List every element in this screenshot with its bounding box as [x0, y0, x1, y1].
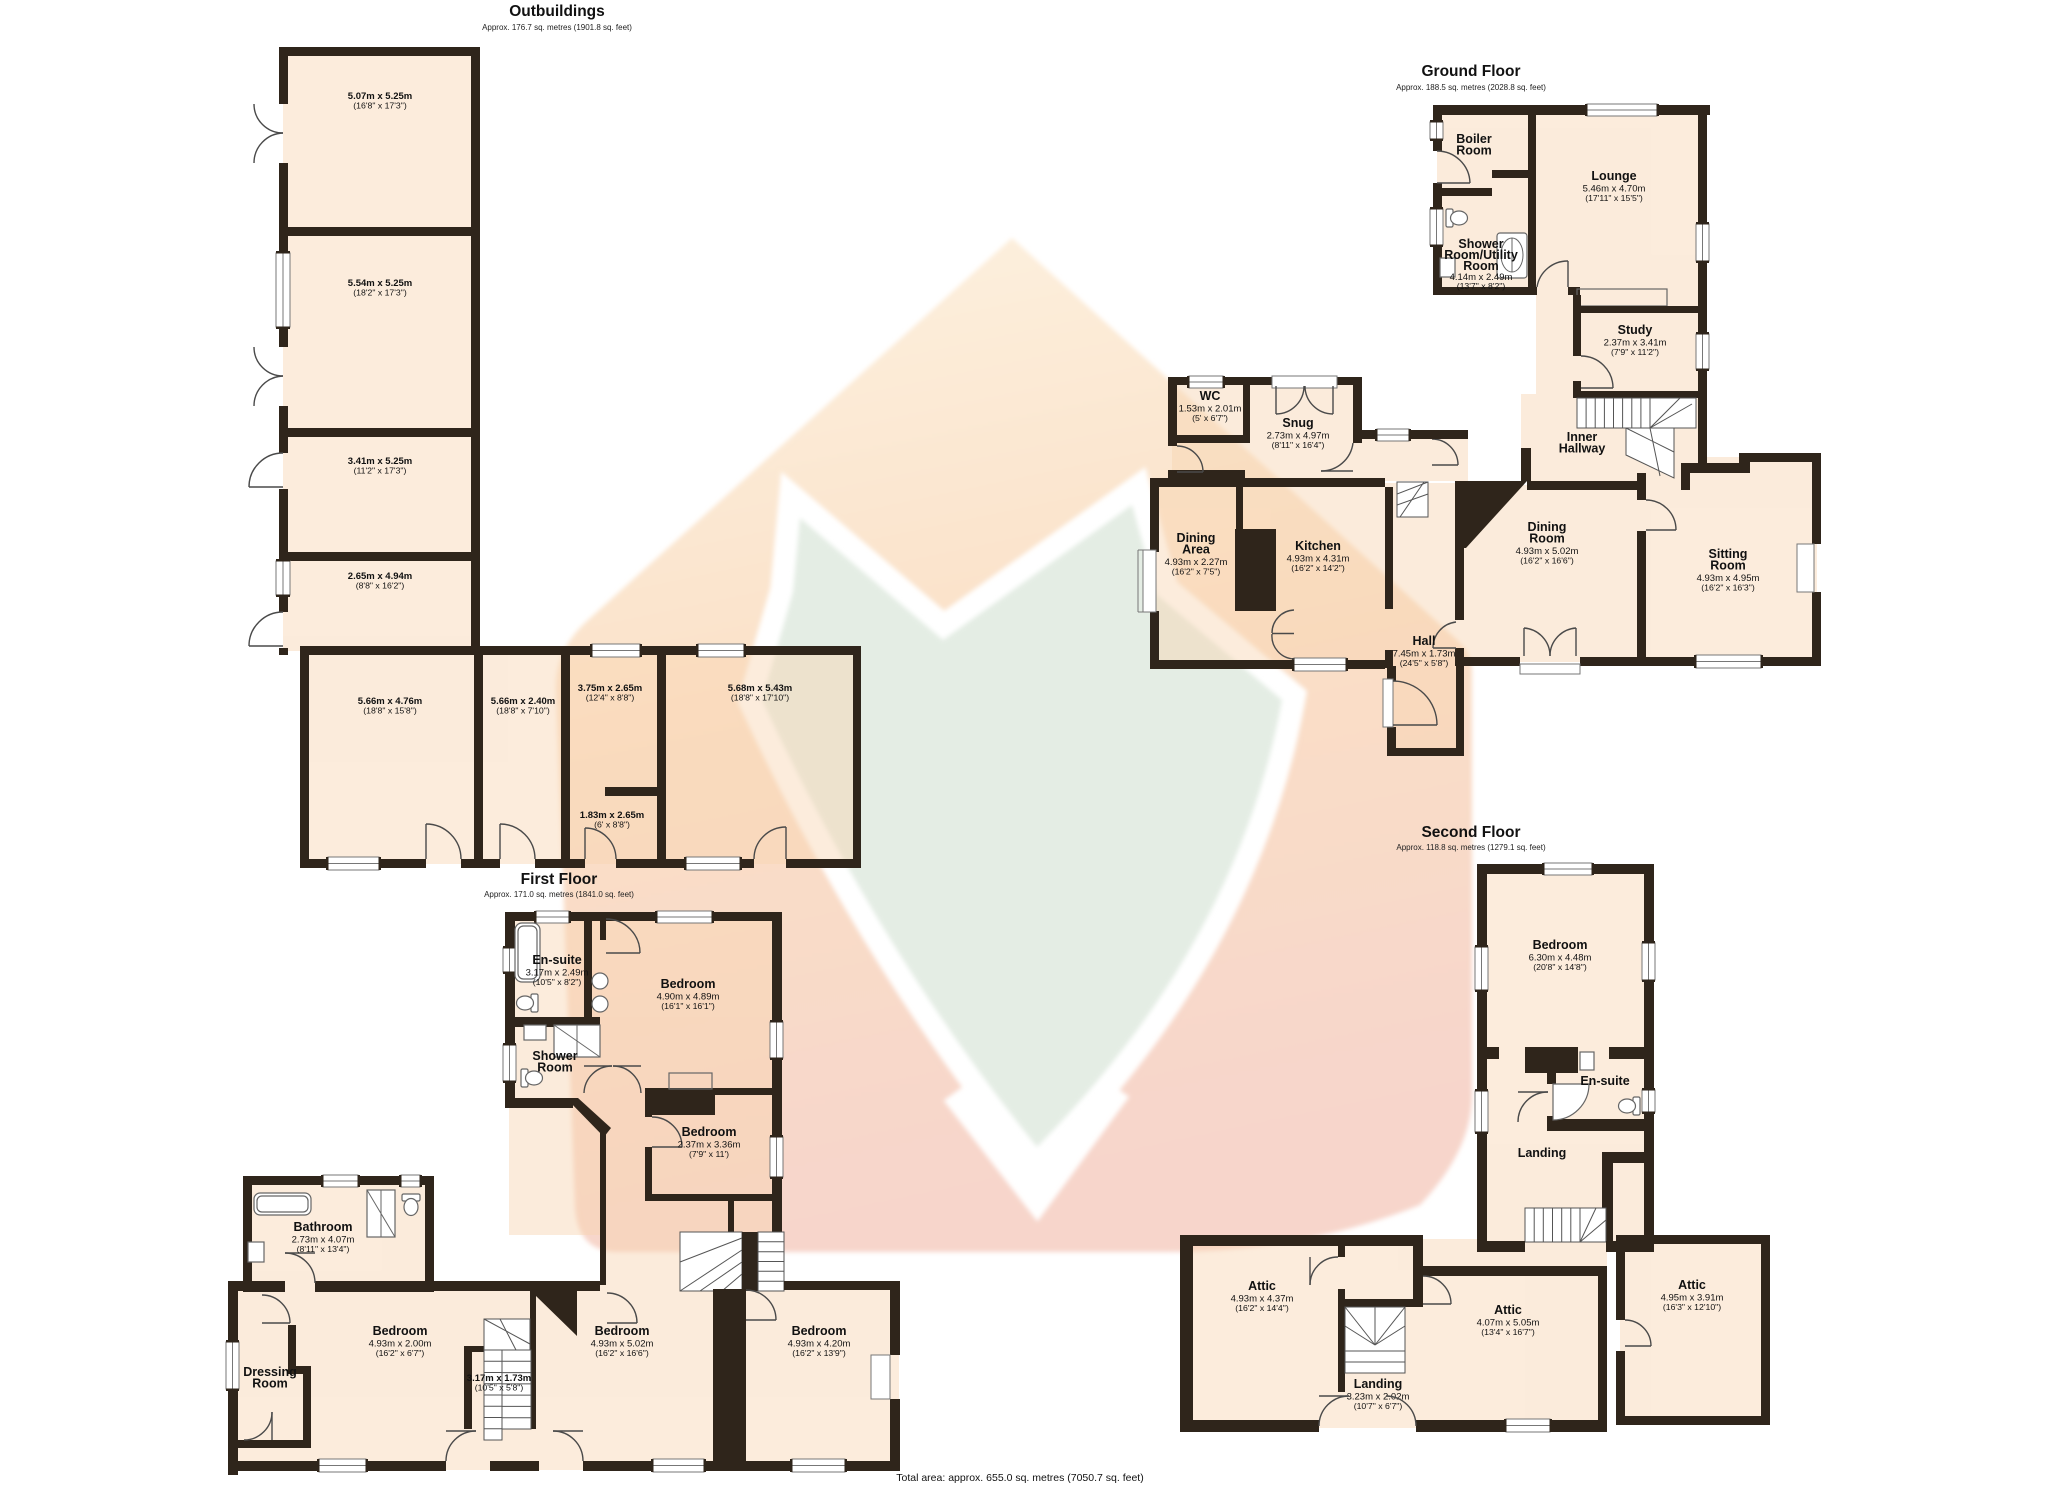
svg-text:Outbuildings: Outbuildings: [509, 3, 605, 20]
svg-text:Ground Floor: Ground Floor: [1421, 63, 1520, 80]
svg-text:(16'2" x 6'7"): (16'2" x 6'7"): [376, 1348, 425, 1358]
svg-text:Approx. 171.0 sq. metres (1841: Approx. 171.0 sq. metres (1841.0 sq. fee…: [484, 890, 634, 899]
svg-text:(16'2" x 16'3"): (16'2" x 16'3"): [1701, 583, 1755, 593]
svg-text:Attic: Attic: [1248, 1279, 1276, 1293]
svg-text:(16'2" x 16'6"): (16'2" x 16'6"): [1520, 556, 1574, 566]
svg-text:En-suite: En-suite: [532, 953, 581, 967]
svg-text:Room: Room: [1710, 559, 1745, 573]
svg-text:(18'8" x 17'10"): (18'8" x 17'10"): [731, 693, 789, 703]
svg-text:Bedroom: Bedroom: [595, 1324, 650, 1338]
svg-text:(16'3" x 12'10"): (16'3" x 12'10"): [1663, 1302, 1721, 1312]
svg-text:Kitchen: Kitchen: [1295, 539, 1341, 553]
svg-text:(8'11" x 16'4"): (8'11" x 16'4"): [1272, 440, 1325, 450]
svg-text:Study: Study: [1618, 323, 1653, 337]
svg-text:En-suite: En-suite: [1580, 1074, 1629, 1088]
svg-text:Attic: Attic: [1494, 1303, 1522, 1317]
svg-text:Bedroom: Bedroom: [682, 1125, 737, 1139]
svg-text:Room: Room: [1456, 144, 1491, 158]
svg-text:Area: Area: [1182, 543, 1211, 557]
svg-text:Landing: Landing: [1518, 1146, 1567, 1160]
svg-text:(7'9" x 11'2"): (7'9" x 11'2"): [1611, 347, 1659, 357]
svg-text:(13'4" x 16'7"): (13'4" x 16'7"): [1481, 1327, 1535, 1337]
svg-text:(18'8" x 7'10"): (18'8" x 7'10"): [496, 706, 550, 716]
svg-text:Bedroom: Bedroom: [792, 1324, 847, 1338]
svg-text:(11'2" x 17'3"): (11'2" x 17'3"): [354, 466, 407, 476]
svg-text:Total area: approx. 655.0 sq.: Total area: approx. 655.0 sq. metres (70…: [896, 1472, 1143, 1484]
svg-text:(18'2" x 17'3"): (18'2" x 17'3"): [353, 288, 407, 298]
svg-text:Snug: Snug: [1282, 416, 1313, 430]
svg-text:(16'2" x 16'6"): (16'2" x 16'6"): [595, 1348, 649, 1358]
svg-text:Bedroom: Bedroom: [373, 1324, 428, 1338]
svg-text:(16'1" x 16'1"): (16'1" x 16'1"): [661, 1001, 715, 1011]
svg-text:(16'8" x 17'3"): (16'8" x 17'3"): [353, 101, 407, 111]
svg-text:(17'11" x 15'5"): (17'11" x 15'5"): [1585, 193, 1643, 203]
svg-text:(20'8" x 14'8"): (20'8" x 14'8"): [1533, 962, 1587, 972]
svg-text:Hallway: Hallway: [1559, 442, 1606, 456]
svg-text:(6' x 8'8"): (6' x 8'8"): [594, 820, 630, 830]
svg-text:Second Floor: Second Floor: [1421, 824, 1520, 841]
svg-text:(13'7" x 8'2"): (13'7" x 8'2"): [1457, 281, 1506, 291]
svg-text:Room: Room: [252, 1377, 287, 1391]
svg-text:Bathroom: Bathroom: [293, 1220, 352, 1234]
svg-text:(12'4" x 8'8"): (12'4" x 8'8"): [586, 693, 635, 703]
svg-text:(18'8" x 15'8"): (18'8" x 15'8"): [363, 706, 417, 716]
svg-text:(7'9" x 11'): (7'9" x 11'): [689, 1149, 729, 1159]
svg-text:(8'8" x 16'2"): (8'8" x 16'2"): [356, 581, 405, 591]
svg-text:WC: WC: [1200, 389, 1221, 403]
svg-text:Attic: Attic: [1678, 1278, 1706, 1292]
svg-text:(16'2" x 14'2"): (16'2" x 14'2"): [1291, 563, 1345, 573]
svg-text:(8'11" x 13'4"): (8'11" x 13'4"): [297, 1244, 350, 1254]
svg-text:Room: Room: [537, 1061, 572, 1075]
svg-text:(16'2" x 13'9"): (16'2" x 13'9"): [792, 1348, 846, 1358]
svg-text:(10'5" x 5'8"): (10'5" x 5'8"): [475, 1383, 524, 1393]
svg-text:Bedroom: Bedroom: [1533, 938, 1588, 952]
svg-text:(16'2" x 14'4"): (16'2" x 14'4"): [1235, 1303, 1289, 1313]
svg-text:Approx. 176.7 sq. metres (1901: Approx. 176.7 sq. metres (1901.8 sq. fee…: [482, 23, 632, 32]
svg-text:(10'5" x 8'2"): (10'5" x 8'2"): [533, 977, 582, 987]
svg-text:Landing: Landing: [1354, 1377, 1403, 1391]
svg-text:Room: Room: [1529, 532, 1564, 546]
svg-text:Lounge: Lounge: [1591, 169, 1636, 183]
svg-text:(5' x 6'7"): (5' x 6'7"): [1192, 413, 1228, 423]
svg-text:(24'5" x 5'8"): (24'5" x 5'8"): [1400, 658, 1449, 668]
svg-text:Hall: Hall: [1413, 634, 1436, 648]
svg-text:First Floor: First Floor: [521, 871, 598, 888]
svg-text:Room: Room: [1463, 259, 1498, 273]
svg-text:(10'7" x 6'7"): (10'7" x 6'7"): [1354, 1401, 1403, 1411]
svg-text:Bedroom: Bedroom: [661, 977, 716, 991]
svg-text:Approx. 118.8 sq. metres (1279: Approx. 118.8 sq. metres (1279.1 sq. fee…: [1396, 843, 1546, 852]
svg-text:(16'2" x 7'5"): (16'2" x 7'5"): [1172, 567, 1221, 577]
svg-text:Approx. 188.5 sq. metres (2028: Approx. 188.5 sq. metres (2028.8 sq. fee…: [1396, 83, 1546, 92]
